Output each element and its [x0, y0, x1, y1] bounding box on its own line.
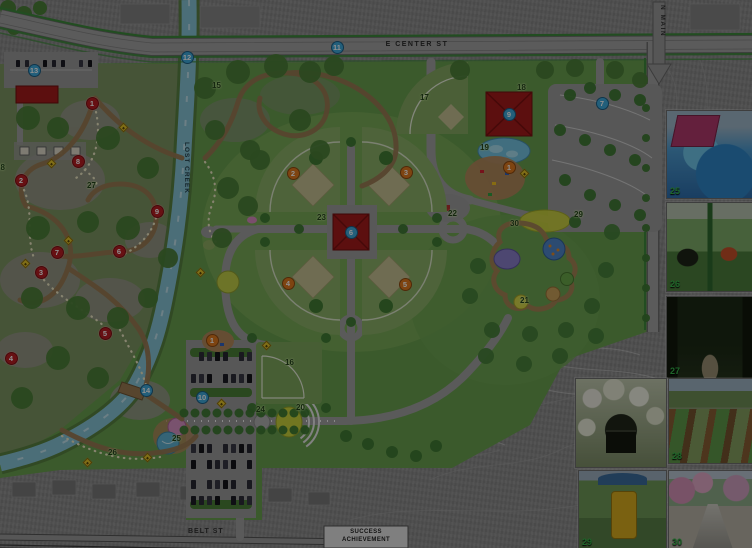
nw-pavilions [14, 142, 86, 160]
success-achievement-building [324, 526, 408, 548]
map-artwork [0, 0, 752, 548]
ne-recreation-building [486, 92, 532, 136]
field-16 [256, 342, 322, 404]
flower-bed [247, 217, 257, 224]
park-master-plan-map: E CENTER ST BELT ST N MAIN LOST CREEK SU… [0, 0, 752, 548]
belt-st-road [0, 537, 358, 542]
nw-red-building [16, 86, 58, 103]
e-center-st-road [0, 8, 752, 62]
ne-playground [465, 156, 525, 200]
